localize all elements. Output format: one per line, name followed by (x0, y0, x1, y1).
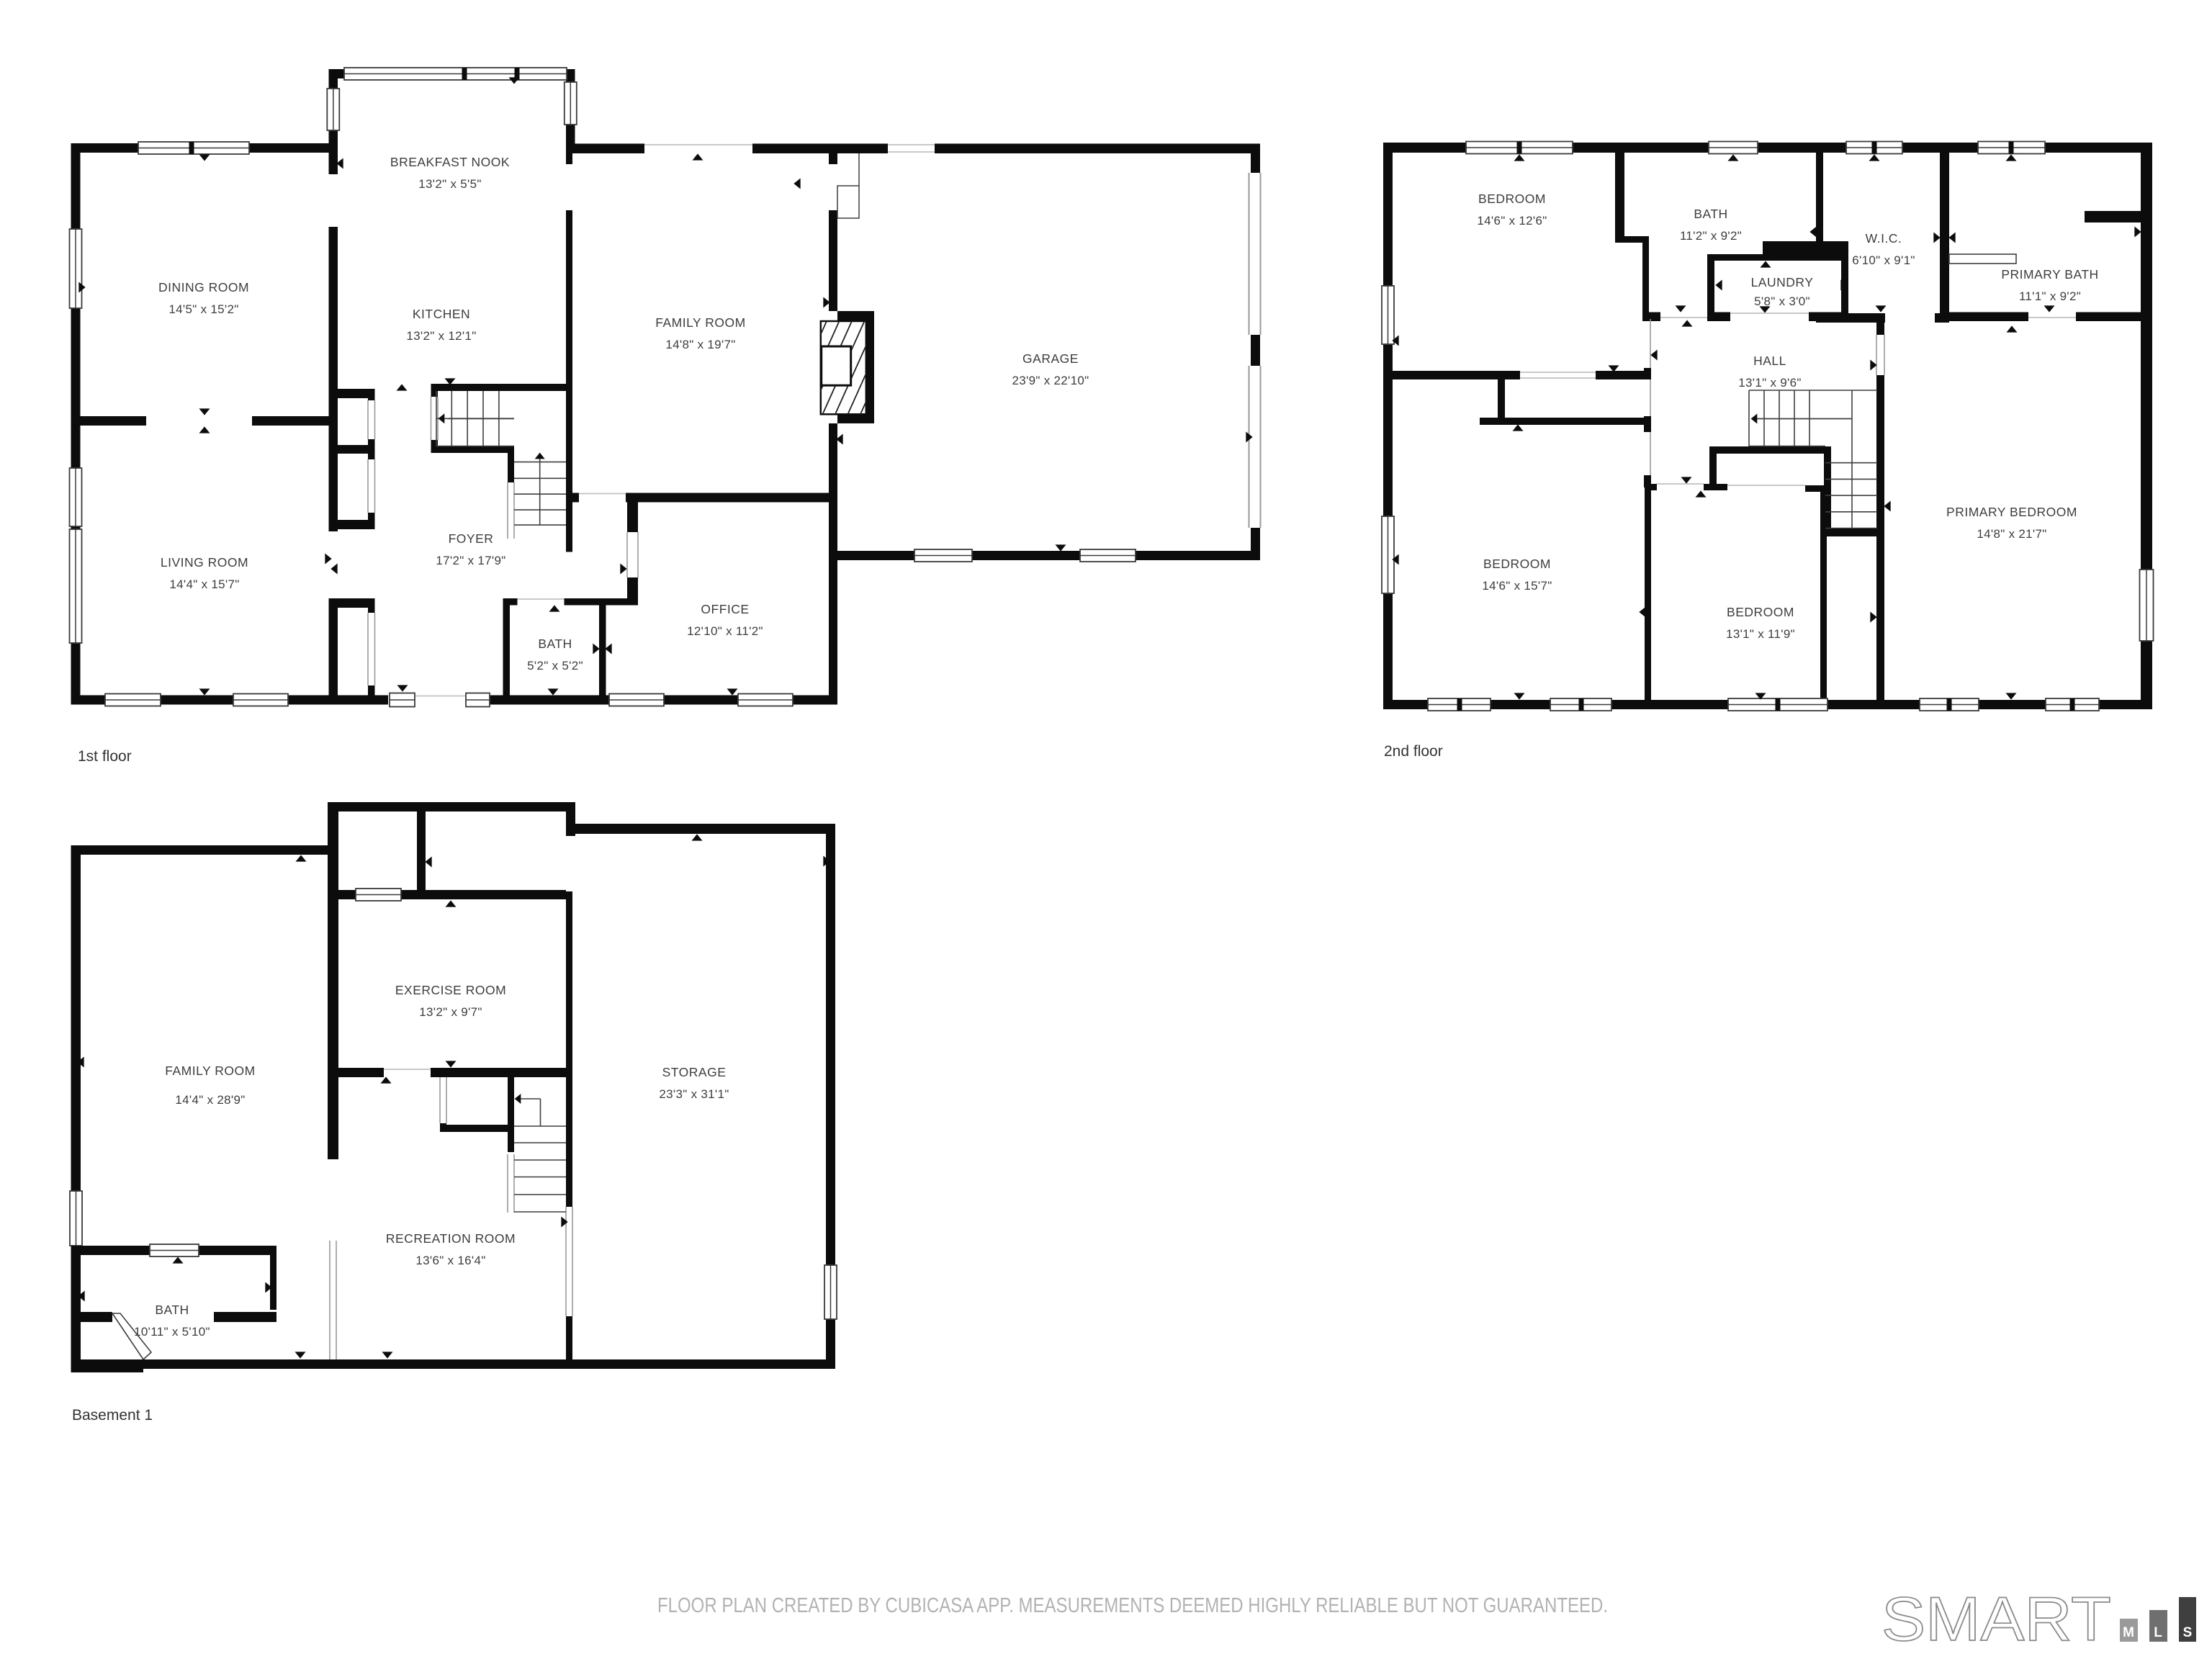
svg-text:13'1" x 9'6": 13'1" x 9'6" (1738, 376, 1801, 390)
svg-text:PRIMARY BEDROOM: PRIMARY BEDROOM (1946, 505, 2077, 519)
svg-text:BATH: BATH (155, 1303, 189, 1317)
svg-text:1st floor: 1st floor (78, 748, 132, 765)
svg-text:10'11" x 5'10": 10'11" x 5'10" (134, 1325, 210, 1339)
svg-text:14'6" x 15'7": 14'6" x 15'7" (1482, 579, 1552, 593)
svg-text:13'6" x 16'4": 13'6" x 16'4" (415, 1254, 485, 1267)
svg-text:14'6" x 12'6": 14'6" x 12'6" (1477, 214, 1547, 228)
svg-text:BEDROOM: BEDROOM (1478, 192, 1546, 206)
svg-text:SMART: SMART (1881, 1585, 2111, 1654)
svg-text:FOYER: FOYER (449, 531, 494, 546)
svg-text:17'2" x 17'9": 17'2" x 17'9" (436, 554, 505, 567)
svg-text:11'2" x 9'2": 11'2" x 9'2" (1680, 229, 1742, 243)
svg-text:BREAKFAST NOOK: BREAKFAST NOOK (390, 155, 510, 169)
svg-text:RECREATION ROOM: RECREATION ROOM (386, 1231, 516, 1246)
svg-text:FLOOR PLAN CREATED BY CUBICASA: FLOOR PLAN CREATED BY CUBICASA APP. MEAS… (657, 1594, 1608, 1617)
svg-text:L: L (2154, 1625, 2162, 1640)
svg-text:FAMILY ROOM: FAMILY ROOM (165, 1064, 255, 1078)
svg-text:13'2" x 12'1": 13'2" x 12'1" (406, 329, 476, 343)
svg-text:M: M (2123, 1625, 2134, 1640)
svg-text:14'8" x 19'7": 14'8" x 19'7" (665, 338, 735, 351)
svg-text:BEDROOM: BEDROOM (1727, 605, 1794, 619)
svg-text:14'8" x 21'7": 14'8" x 21'7" (1977, 527, 2046, 541)
svg-text:LAUNDRY: LAUNDRY (1751, 275, 1814, 289)
svg-text:W.I.C.: W.I.C. (1866, 231, 1902, 246)
svg-text:Basement 1: Basement 1 (72, 1407, 153, 1424)
svg-text:14'4" x 15'7": 14'4" x 15'7" (169, 577, 239, 591)
svg-text:GARAGE: GARAGE (1022, 351, 1079, 366)
svg-text:OFFICE: OFFICE (701, 602, 749, 616)
svg-text:FAMILY ROOM: FAMILY ROOM (655, 315, 745, 330)
svg-text:13'1" x 11'9": 13'1" x 11'9" (1726, 627, 1795, 641)
svg-text:23'9" x 22'10": 23'9" x 22'10" (1012, 374, 1089, 387)
svg-text:EXERCISE ROOM: EXERCISE ROOM (395, 983, 506, 997)
svg-text:13'2" x 5'5": 13'2" x 5'5" (418, 177, 481, 191)
svg-text:12'10" x 11'2": 12'10" x 11'2" (687, 624, 763, 638)
svg-text:6'10" x 9'1": 6'10" x 9'1" (1852, 253, 1915, 267)
svg-text:BATH: BATH (1694, 207, 1727, 221)
svg-text:13'2" x 9'7": 13'2" x 9'7" (419, 1005, 482, 1019)
svg-text:LIVING ROOM: LIVING ROOM (161, 555, 248, 570)
svg-text:STORAGE: STORAGE (662, 1065, 727, 1079)
svg-text:14'4" x 28'9": 14'4" x 28'9" (175, 1093, 245, 1107)
svg-text:5'2" x 5'2": 5'2" x 5'2" (527, 659, 583, 673)
svg-text:BATH: BATH (538, 637, 572, 651)
svg-text:KITCHEN: KITCHEN (413, 307, 470, 321)
svg-text:5'8" x 3'0": 5'8" x 3'0" (1754, 295, 1810, 308)
svg-text:BEDROOM: BEDROOM (1483, 557, 1551, 571)
svg-text:S: S (2183, 1625, 2193, 1640)
svg-text:DINING ROOM: DINING ROOM (158, 280, 249, 295)
svg-text:2nd floor: 2nd floor (1384, 743, 1443, 760)
svg-text:14'5" x 15'2": 14'5" x 15'2" (168, 302, 238, 316)
svg-text:HALL: HALL (1753, 354, 1786, 368)
svg-text:PRIMARY BATH: PRIMARY BATH (2001, 267, 2098, 282)
svg-text:23'3" x 31'1": 23'3" x 31'1" (659, 1087, 729, 1101)
svg-text:11'1" x 9'2": 11'1" x 9'2" (2019, 289, 2081, 303)
